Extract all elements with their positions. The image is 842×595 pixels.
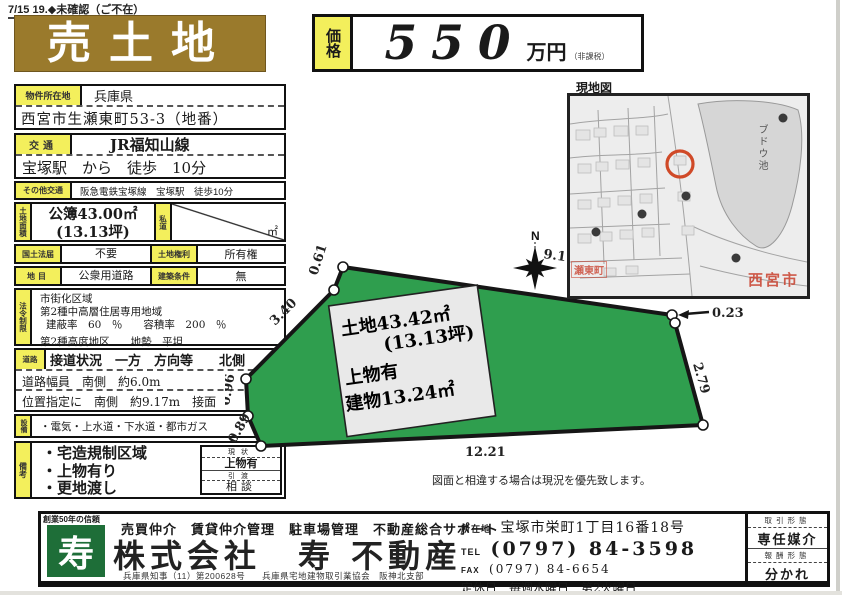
- regulation-line-2: 第2種中高層住居専用地域: [40, 306, 226, 319]
- price-amount: 550: [384, 17, 524, 71]
- utilities-value: ・電気・上水道・下水道・都市ガス: [32, 419, 208, 434]
- license-number: 兵庫県知事（11）第200628号: [123, 571, 245, 581]
- map-city-label: 西宮市: [748, 269, 799, 290]
- location-pref: 兵庫県: [82, 86, 133, 105]
- fax-value: (0797) 84-6654: [489, 562, 611, 576]
- lot-info-card: 土地43.42㎡ (13.13坪) 上物有 建物13.24㎡: [329, 285, 496, 437]
- handover-value: 相談: [202, 481, 280, 493]
- tel-label: TEL: [461, 547, 481, 557]
- fax-label: FAX: [461, 566, 480, 575]
- kokudo-label: 国土法届: [16, 246, 62, 262]
- road-line-1: 接道状況 一方 方向等 北側: [46, 350, 245, 369]
- remarks-label: 備考: [16, 443, 32, 497]
- address-value: 宝塚市栄町1丁目16番18号: [500, 520, 685, 536]
- company-tagline: 創業50年の信頼: [43, 514, 100, 525]
- remarks-line-2: ・上物有り: [42, 463, 147, 481]
- dim-top-left: 0.61: [307, 242, 331, 277]
- other-transport-label: その他交通: [16, 183, 72, 198]
- transport-line: JR福知山線: [72, 134, 190, 155]
- deal-type-box: 取引形態 専任媒介 報酬形態 分かれ: [745, 514, 827, 584]
- price-label-text: 価格: [322, 28, 343, 58]
- utilities-label: 設備: [16, 416, 32, 436]
- dim-top-right: 0.23: [712, 306, 744, 321]
- remarks-line-3: ・更地渡し: [42, 480, 147, 498]
- remarks-line-1: ・宅造規制区域: [42, 445, 147, 463]
- land-area-tsubo: (13.13坪): [32, 224, 154, 242]
- dim-top-right-arrow: [678, 310, 709, 319]
- footer-company-bar: 創業50年の信頼 寿 売買仲介 賃貸仲介管理 駐車場管理 不動産総合サポート 株…: [38, 511, 830, 587]
- dim-left-diag: 3.40: [267, 296, 300, 329]
- map-buildings: [576, 126, 694, 276]
- address-label: 所在地: [461, 524, 491, 534]
- transport-box: 交通 JR福知山線 宝塚駅 から 徒歩 10分: [14, 133, 286, 179]
- price-box: 価格 550 万円 （非課税）: [312, 14, 644, 72]
- deal-type-label: 取引形態: [748, 514, 827, 528]
- dim-bottom: 12.21: [465, 445, 506, 460]
- regulation-line-3: 建蔽率 60 ％ 容積率 200 ％: [40, 319, 226, 332]
- land-area-value: 公簿43.00㎡: [32, 206, 154, 224]
- company-license: 兵庫県知事（11）第200628号 兵庫県宅地建物取引業協会 阪神北支部: [123, 570, 424, 582]
- price-label: 価格: [315, 17, 353, 69]
- road-label: 道路: [16, 350, 46, 369]
- jouken-label: 建築条件: [152, 268, 198, 284]
- regulation-line-4: 第2種高度地区 地勢 平坦: [40, 336, 226, 349]
- price-unit: 万円: [527, 36, 567, 65]
- company-logo: 寿: [47, 525, 105, 577]
- other-transport-value: 阪急電鉄宝塚線 宝塚駅 徒歩10分: [72, 184, 233, 198]
- deal-type-value: 専任媒介: [748, 528, 827, 549]
- location-map: ブドウ池 西宮市 瀬東町: [567, 93, 810, 299]
- dim-left-2: 0.89: [225, 411, 254, 446]
- regulation-label: 法令制限: [16, 290, 32, 344]
- compass-north-label: N: [531, 229, 540, 243]
- fee-split-value: 分かれ: [748, 563, 827, 584]
- kokudo-value: 不要: [62, 246, 152, 262]
- location-label: 物件所在地: [16, 86, 82, 105]
- fee-split-label: 報酬形態: [748, 549, 827, 563]
- chimoku-label: 地目: [16, 268, 62, 284]
- company-logo-kanji: 寿: [58, 525, 94, 577]
- plan-disclaimer: 図面と相違する場合は現況を優先致します。: [432, 472, 651, 488]
- dim-left-1: 0.96: [225, 373, 238, 407]
- regulation-line-1: 市街化区域: [40, 293, 226, 306]
- location-box: 物件所在地 兵庫県 西宮市生瀬東町53-3（地番）: [14, 84, 286, 130]
- sale-title: 売土地: [47, 18, 233, 69]
- private-road-label: 私道: [156, 204, 172, 240]
- chimoku-value: 公衆用道路: [62, 268, 152, 284]
- other-transport-box: その他交通 阪急電鉄宝塚線 宝塚駅 徒歩10分: [14, 181, 286, 200]
- license-association: 兵庫県宅地建物取引業協会 阪神北支部: [262, 571, 424, 581]
- contact-block: 所在地 宝塚市栄町1丁目16番18号 TEL (0797) 84-3598 FA…: [461, 517, 741, 595]
- tel-value: (0797) 84-3598: [490, 538, 697, 560]
- transport-label: 交通: [16, 135, 72, 154]
- price-tax-note: （非課税）: [570, 51, 610, 62]
- flyer-page: 7/15 19.◆未確認（ご不在） 売土地 価格 550 万円 （非課税） 物件…: [0, 0, 842, 595]
- rights-label: 土地権利: [152, 246, 198, 262]
- scan-edge-right: [836, 0, 840, 595]
- location-address: 西宮市生瀬東町53-3（地番）: [16, 107, 284, 129]
- sale-title-banner: 売土地: [14, 15, 266, 72]
- map-pond-label: ブドウ池: [754, 124, 769, 172]
- transport-station: 宝塚駅 から 徒歩 10分: [16, 156, 284, 178]
- land-area-label: 土地面積: [16, 204, 32, 240]
- map-town-label: 瀬東町: [571, 261, 607, 278]
- scan-edge-bottom: [0, 591, 842, 595]
- map-pond: [698, 101, 802, 248]
